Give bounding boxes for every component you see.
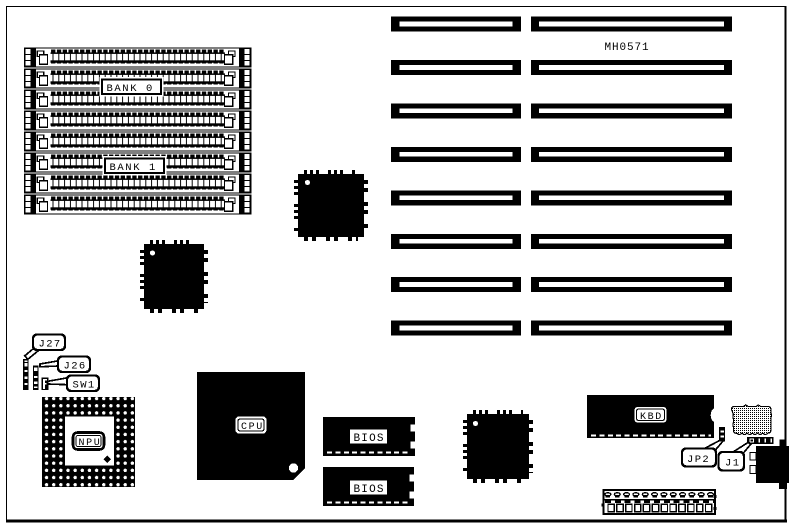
svg-text:BANK 0: BANK 0	[107, 83, 154, 95]
svg-text:J26: J26	[64, 361, 87, 373]
svg-text:BANK 1: BANK 1	[110, 162, 157, 174]
svg-text:J1: J1	[725, 458, 740, 470]
svg-text:JP2: JP2	[687, 454, 710, 466]
svg-text:BIOS: BIOS	[354, 484, 385, 496]
svg-text:KBD: KBD	[640, 412, 663, 423]
svg-text:CPU: CPU	[241, 422, 264, 433]
svg-text:BIOS: BIOS	[354, 433, 385, 445]
svg-text:MH0571: MH0571	[605, 42, 650, 54]
svg-text:SW1: SW1	[73, 380, 96, 392]
svg-text:NPU: NPU	[79, 438, 102, 449]
svg-text:J27: J27	[39, 339, 62, 351]
